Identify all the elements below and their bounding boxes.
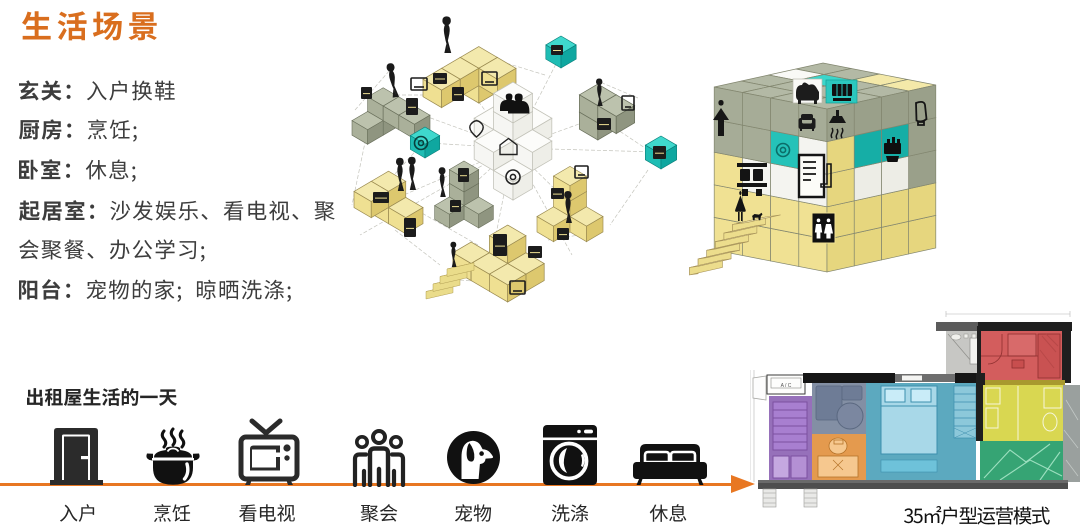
svg-text:A / C: A / C [781,383,792,389]
